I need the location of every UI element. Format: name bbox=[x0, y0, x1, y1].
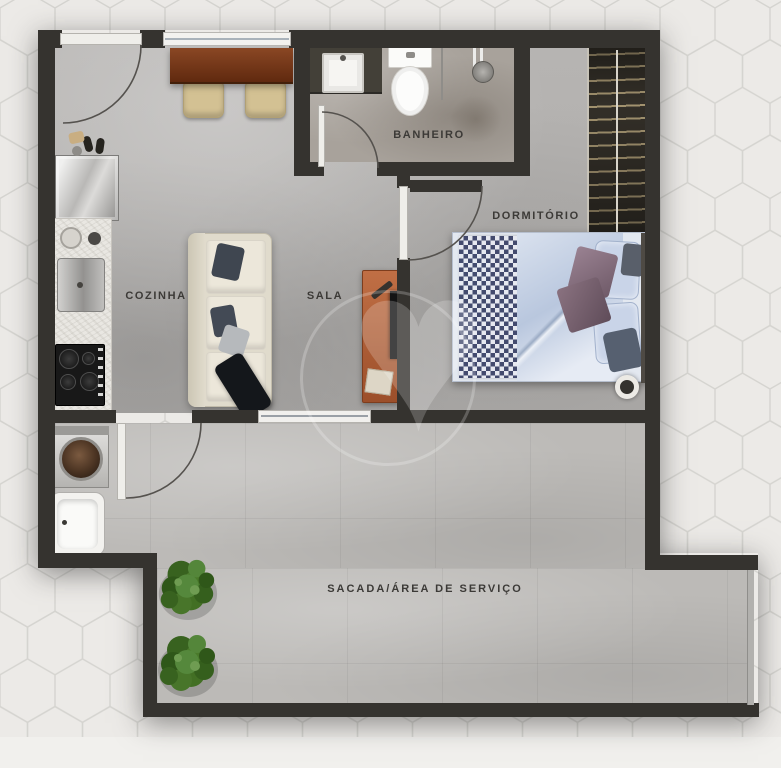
wall bbox=[143, 553, 157, 717]
sliding-door-glass-line bbox=[261, 415, 368, 417]
entry-door-leaf bbox=[60, 33, 142, 45]
wall bbox=[645, 30, 660, 570]
counter-kettle bbox=[88, 232, 101, 245]
floor-balcony-a bbox=[55, 423, 645, 568]
plant bbox=[152, 553, 220, 623]
counter-basin bbox=[60, 227, 82, 249]
dining-chair bbox=[245, 80, 286, 118]
room-label-dormitorio: DORMITÓRIO bbox=[492, 210, 580, 222]
wardrobe-rail bbox=[616, 50, 618, 232]
service-door-leaf bbox=[117, 423, 126, 500]
cooktop-burner bbox=[82, 352, 95, 365]
wall bbox=[143, 703, 759, 717]
shower-pipe bbox=[441, 48, 443, 100]
bedroom-door-leaf bbox=[399, 186, 408, 260]
kitchen-sink bbox=[55, 155, 119, 221]
cooktop-burner bbox=[60, 374, 76, 390]
cooktop-burner bbox=[59, 349, 79, 369]
magazine bbox=[364, 368, 393, 395]
floor-plan-canvas: COZINHA SALA BANHEIRO DORMITÓRIO SACADA/… bbox=[0, 0, 781, 768]
window-glass-line bbox=[165, 38, 289, 40]
dining-table bbox=[170, 48, 293, 84]
cooktop-burner bbox=[80, 372, 99, 391]
sofa-back bbox=[188, 233, 205, 407]
room-label-cozinha: COZINHA bbox=[125, 290, 186, 302]
room-label-sala: SALA bbox=[307, 290, 343, 302]
wall bbox=[410, 180, 482, 192]
bedside-lamp bbox=[615, 375, 639, 399]
wall bbox=[397, 258, 410, 413]
wall bbox=[140, 30, 165, 48]
wall bbox=[289, 30, 660, 48]
toilet-flush-button bbox=[406, 52, 415, 58]
bathroom-faucet bbox=[340, 55, 346, 61]
wall bbox=[514, 45, 530, 176]
room-label-banheiro: BANHEIRO bbox=[393, 129, 464, 141]
balcony-railing bbox=[747, 570, 754, 705]
washing-machine-drum bbox=[59, 437, 103, 481]
dining-chair bbox=[183, 80, 224, 118]
cooktop-knobs bbox=[98, 348, 103, 402]
bed-checker-throw bbox=[459, 236, 519, 378]
refrigerator-handle bbox=[77, 282, 83, 288]
wall bbox=[645, 555, 758, 570]
wall bbox=[38, 30, 55, 568]
wall bbox=[192, 410, 258, 423]
bathroom-door-leaf bbox=[318, 105, 325, 167]
room-label-sacada: SACADA/ÁREA DE SERVIÇO bbox=[327, 583, 523, 595]
kitchen-faucet bbox=[72, 146, 82, 156]
wall bbox=[38, 410, 116, 423]
shower-head bbox=[472, 61, 494, 83]
laundry-tub-drain bbox=[62, 520, 67, 525]
wall bbox=[370, 410, 647, 423]
wall bbox=[294, 45, 310, 176]
wall bbox=[38, 553, 144, 568]
plant bbox=[150, 628, 222, 700]
washing-machine-panel bbox=[52, 426, 109, 435]
